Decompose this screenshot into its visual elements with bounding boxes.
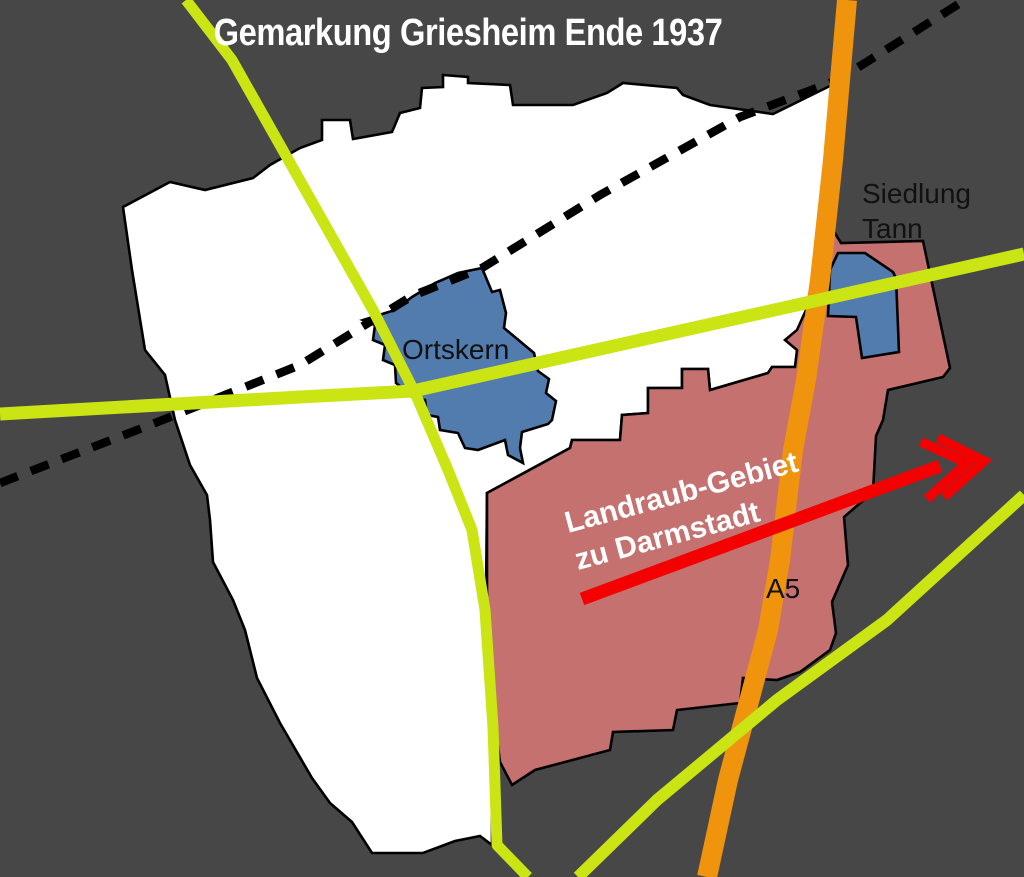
ortskern-label: Ortskern	[402, 334, 509, 365]
siedlung-tann-label-line1: Siedlung	[862, 178, 971, 209]
autobahn-a5-label: A5	[766, 573, 800, 604]
map-title: Gemarkung Griesheim Ende 1937	[214, 12, 723, 55]
map-canvas: Ortskern Siedlung Tann A5 Landraub-Gebie…	[0, 0, 1024, 877]
historical-map-griesheim: Ortskern Siedlung Tann A5 Landraub-Gebie…	[0, 0, 1024, 877]
siedlung-tann-label-line2: Tann	[862, 213, 923, 244]
